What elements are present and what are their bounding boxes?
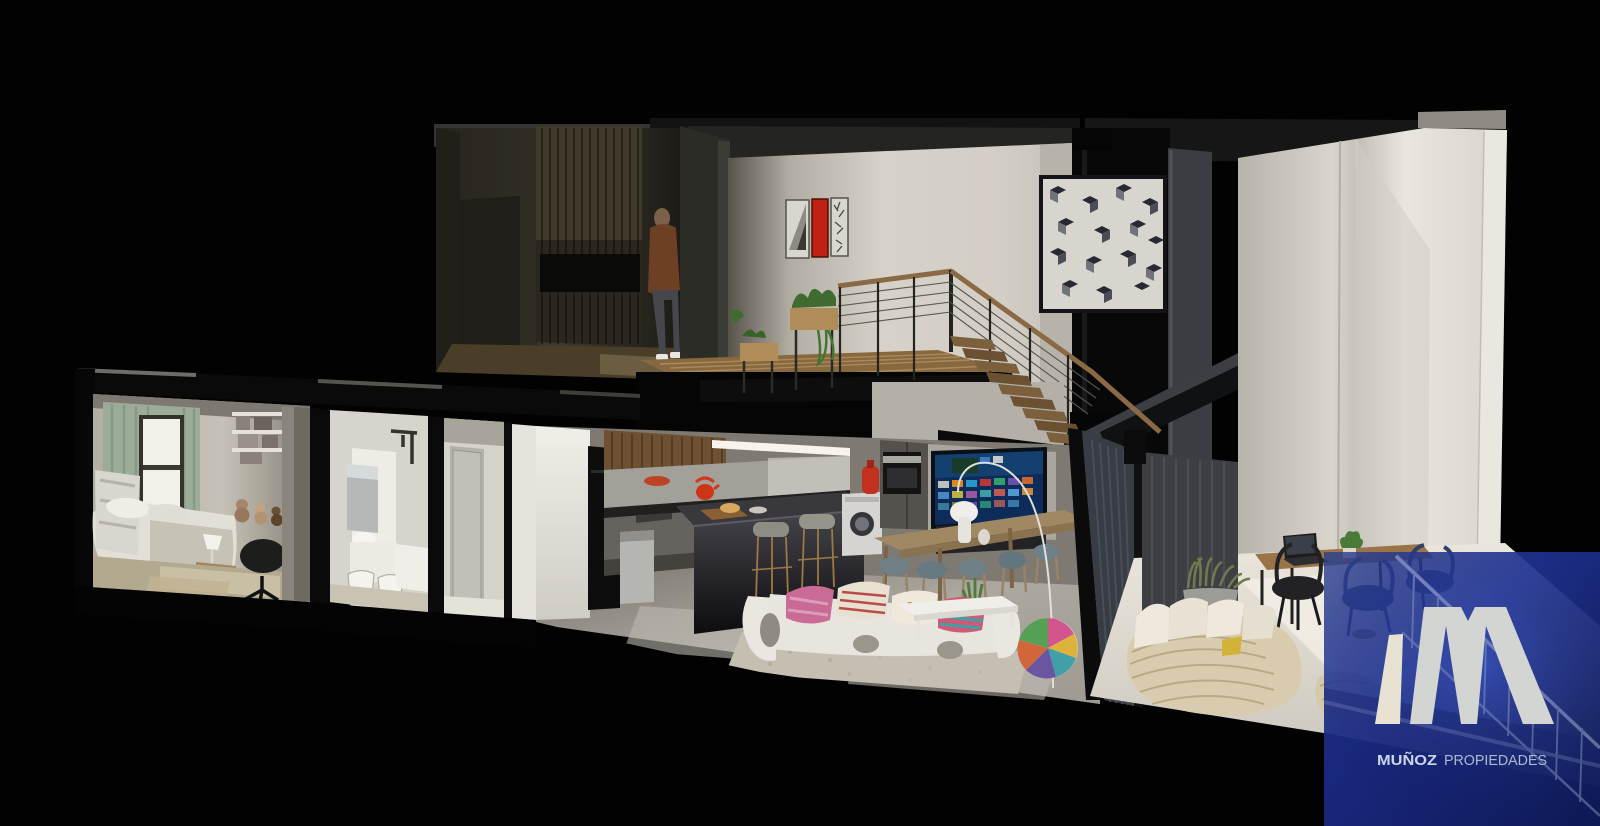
svg-text:MUÑOZ: MUÑOZ	[1377, 751, 1437, 769]
svg-text:PROPIEDADES: PROPIEDADES	[1444, 753, 1547, 769]
